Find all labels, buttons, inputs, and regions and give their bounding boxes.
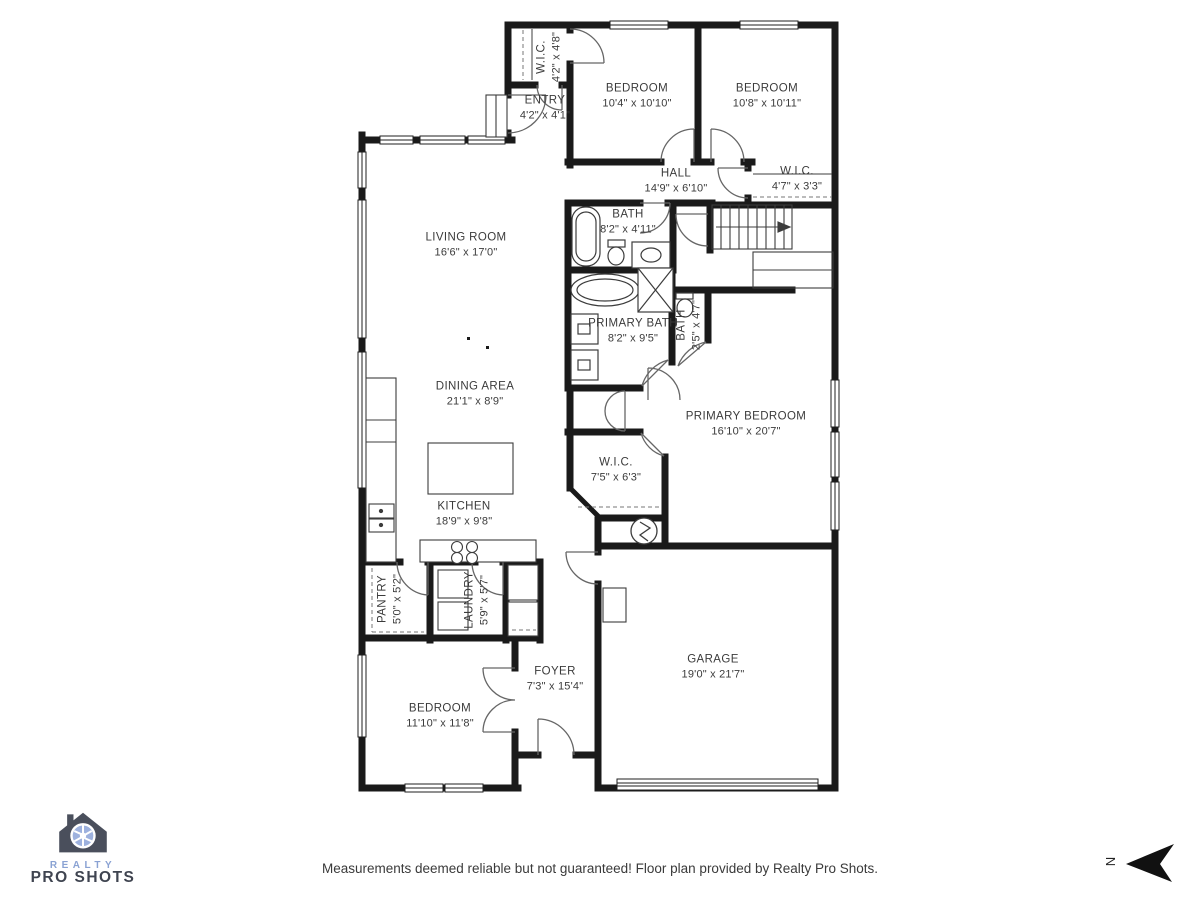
- closet-shelf-lines: [532, 29, 832, 174]
- garage-door: [617, 779, 818, 790]
- marker-dot: [486, 346, 489, 349]
- logo-house-camera-icon: [51, 808, 115, 854]
- water-heater-icon: [631, 518, 657, 544]
- kitchen-fixtures: [366, 378, 536, 564]
- laundry-fixtures: [438, 565, 538, 636]
- closet-cell: [508, 602, 538, 636]
- toilet-icon: [608, 240, 625, 247]
- closet-cell: [508, 565, 538, 600]
- floor-plan-page: W.I.C.4'2" x 4'8" ENTRY4'2" x 4'1" BEDRO…: [0, 0, 1200, 900]
- toilet-small-icon: [676, 293, 693, 299]
- marker-dot: [467, 337, 470, 340]
- floor-plan-drawing: [0, 0, 1200, 900]
- disclaimer-text: Measurements deemed reliable but not gua…: [0, 861, 1200, 876]
- kitchen-island: [428, 443, 513, 494]
- stairs: [712, 205, 792, 249]
- under-stair-closet: [753, 252, 833, 288]
- kitchen-counter: [366, 378, 396, 562]
- washer-icon: [438, 570, 468, 598]
- stove-burner: [452, 542, 463, 553]
- garage-step: [603, 588, 626, 622]
- dryer-icon: [438, 602, 468, 630]
